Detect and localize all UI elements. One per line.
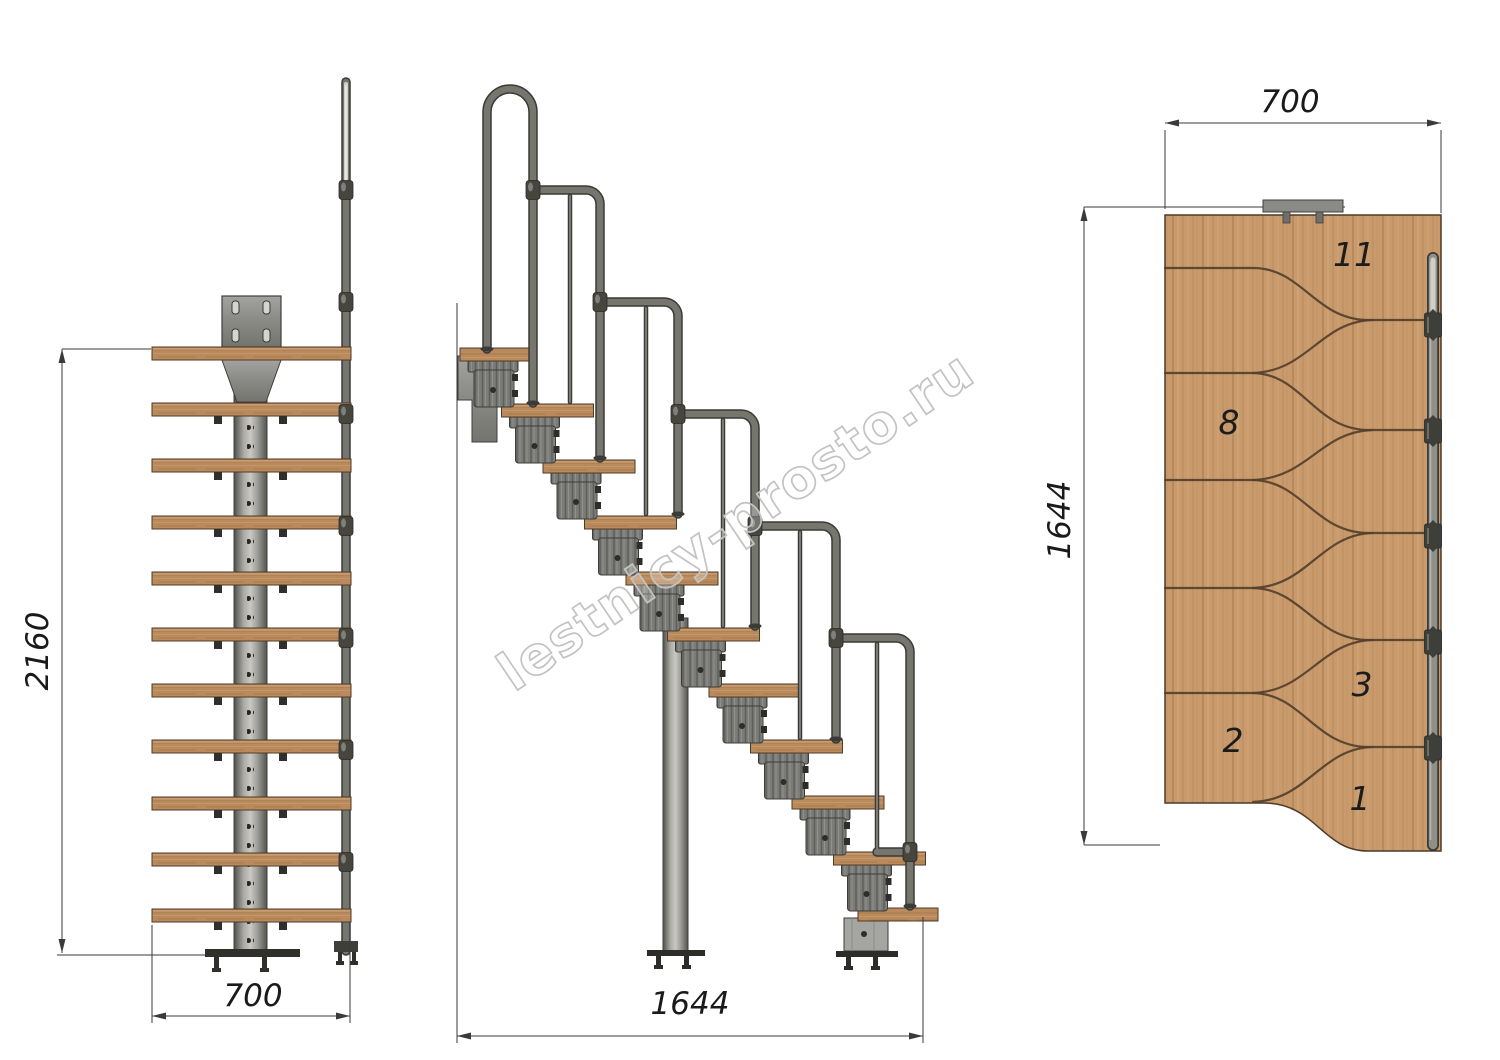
column-base-front <box>205 941 358 972</box>
tread <box>152 740 351 753</box>
tread <box>152 684 351 697</box>
tread <box>152 516 351 529</box>
step-module <box>800 808 850 855</box>
tread <box>152 628 351 641</box>
bottom-support-block <box>836 918 898 970</box>
step-module <box>759 752 809 799</box>
tread <box>460 348 532 361</box>
width-label-plan: 700 <box>1260 84 1319 120</box>
tread <box>152 572 351 585</box>
step-module <box>676 640 726 687</box>
tread <box>792 796 884 809</box>
step-module <box>551 472 601 519</box>
dimension-width-plan: 700 <box>1165 84 1441 213</box>
treads-plan <box>1165 215 1441 851</box>
tread <box>152 797 351 810</box>
tread <box>502 404 594 417</box>
staircase-technical-drawing: 2160 <box>0 0 1500 1060</box>
tread <box>668 628 760 641</box>
step-module <box>842 864 892 911</box>
step-label-1: 1 <box>1350 779 1371 818</box>
step-label-3: 3 <box>1352 665 1373 704</box>
step-label-2: 2 <box>1223 721 1244 760</box>
tread <box>585 516 677 529</box>
width-label-front: 700 <box>223 978 282 1014</box>
front-view: 2160 <box>20 82 358 1023</box>
tread <box>152 347 351 360</box>
step-label-11: 11 <box>1333 235 1375 274</box>
length-label-side: 1644 <box>651 986 730 1022</box>
step-module <box>510 416 560 463</box>
tread <box>709 684 801 697</box>
wall-mount-plate <box>222 296 281 347</box>
height-label-front: 2160 <box>20 612 56 691</box>
tread <box>543 460 635 473</box>
plan-view: 1644 700 <box>1042 84 1442 851</box>
tread <box>152 909 351 922</box>
handrail-plan <box>1425 258 1442 845</box>
column-top-funnel <box>222 360 281 402</box>
step-module <box>717 696 767 743</box>
tread <box>152 459 351 472</box>
step-label-8: 8 <box>1219 403 1240 442</box>
length-label-plan: 1644 <box>1042 481 1078 560</box>
step-module <box>468 360 518 407</box>
tread <box>751 740 843 753</box>
handrail-side <box>481 89 918 909</box>
tread <box>152 403 351 416</box>
drawing-page: 2160 <box>0 0 1500 1060</box>
tread <box>152 853 351 866</box>
